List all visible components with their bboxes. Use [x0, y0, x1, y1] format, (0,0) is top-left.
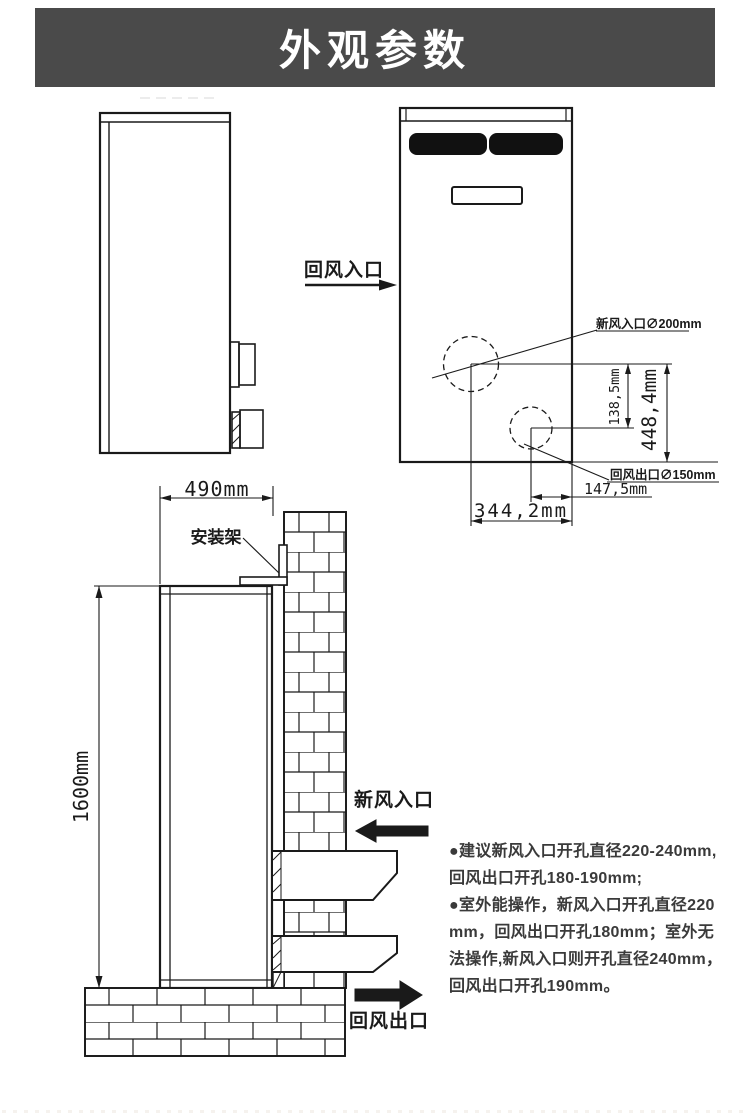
install-view [85, 486, 428, 1056]
note-line: ●室外能操作，新风入口开孔直径220 [449, 892, 749, 919]
dim-448-4: 448,4mm [638, 369, 661, 451]
fresh-air-duct [272, 851, 397, 900]
notes-block: ●建议新风入口开孔直径220-240mm, 回风出口开孔180-190mm; ●… [449, 838, 749, 1000]
fresh-air-inlet-label: 新风入口 [354, 788, 434, 811]
front-view [400, 108, 572, 462]
air-grille-right [489, 133, 563, 155]
dim-138-5: 138,5mm [607, 369, 623, 426]
air-grille-left [409, 133, 487, 155]
return-air-outlet-label: 回风出口 [349, 1009, 429, 1032]
unit-body [160, 586, 272, 988]
note-line: 回风出口开孔190mm。 [449, 973, 749, 1000]
display-panel [452, 187, 522, 204]
fresh-inlet-hole-label: 新风入口∅200mm [596, 316, 702, 331]
front-view-dimensions [432, 330, 719, 526]
note-line: mm，回风出口开孔180mm；室外无 [449, 919, 749, 946]
mounting-bracket-shelf [240, 577, 287, 585]
bracket-label: 安装架 [191, 527, 242, 547]
return-air-arrow [355, 981, 422, 1009]
side-view-body [100, 113, 230, 453]
spec-sheet: 外观参数 [0, 0, 750, 1115]
front-view-body [400, 108, 572, 462]
side-view [100, 113, 263, 453]
dim-490: 490mm [184, 477, 249, 501]
dim-344-2: 344,2mm [474, 500, 568, 522]
dim-1600: 1600mm [69, 751, 93, 823]
note-line: 法操作,新风入口则开孔直径240mm， [449, 946, 749, 973]
return-inlet-pointer [305, 280, 397, 291]
side-upper-duct [230, 342, 239, 387]
note-line: ●建议新风入口开孔直径220-240mm, [449, 838, 749, 865]
note-line: 回风出口开孔180-190mm; [449, 865, 749, 892]
return-inlet-label: 回风入口 [304, 259, 384, 281]
dim-147-5: 147,5mm [584, 480, 647, 498]
return-air-duct [272, 936, 397, 972]
side-lower-duct [240, 410, 263, 448]
fresh-air-arrow [356, 820, 428, 842]
